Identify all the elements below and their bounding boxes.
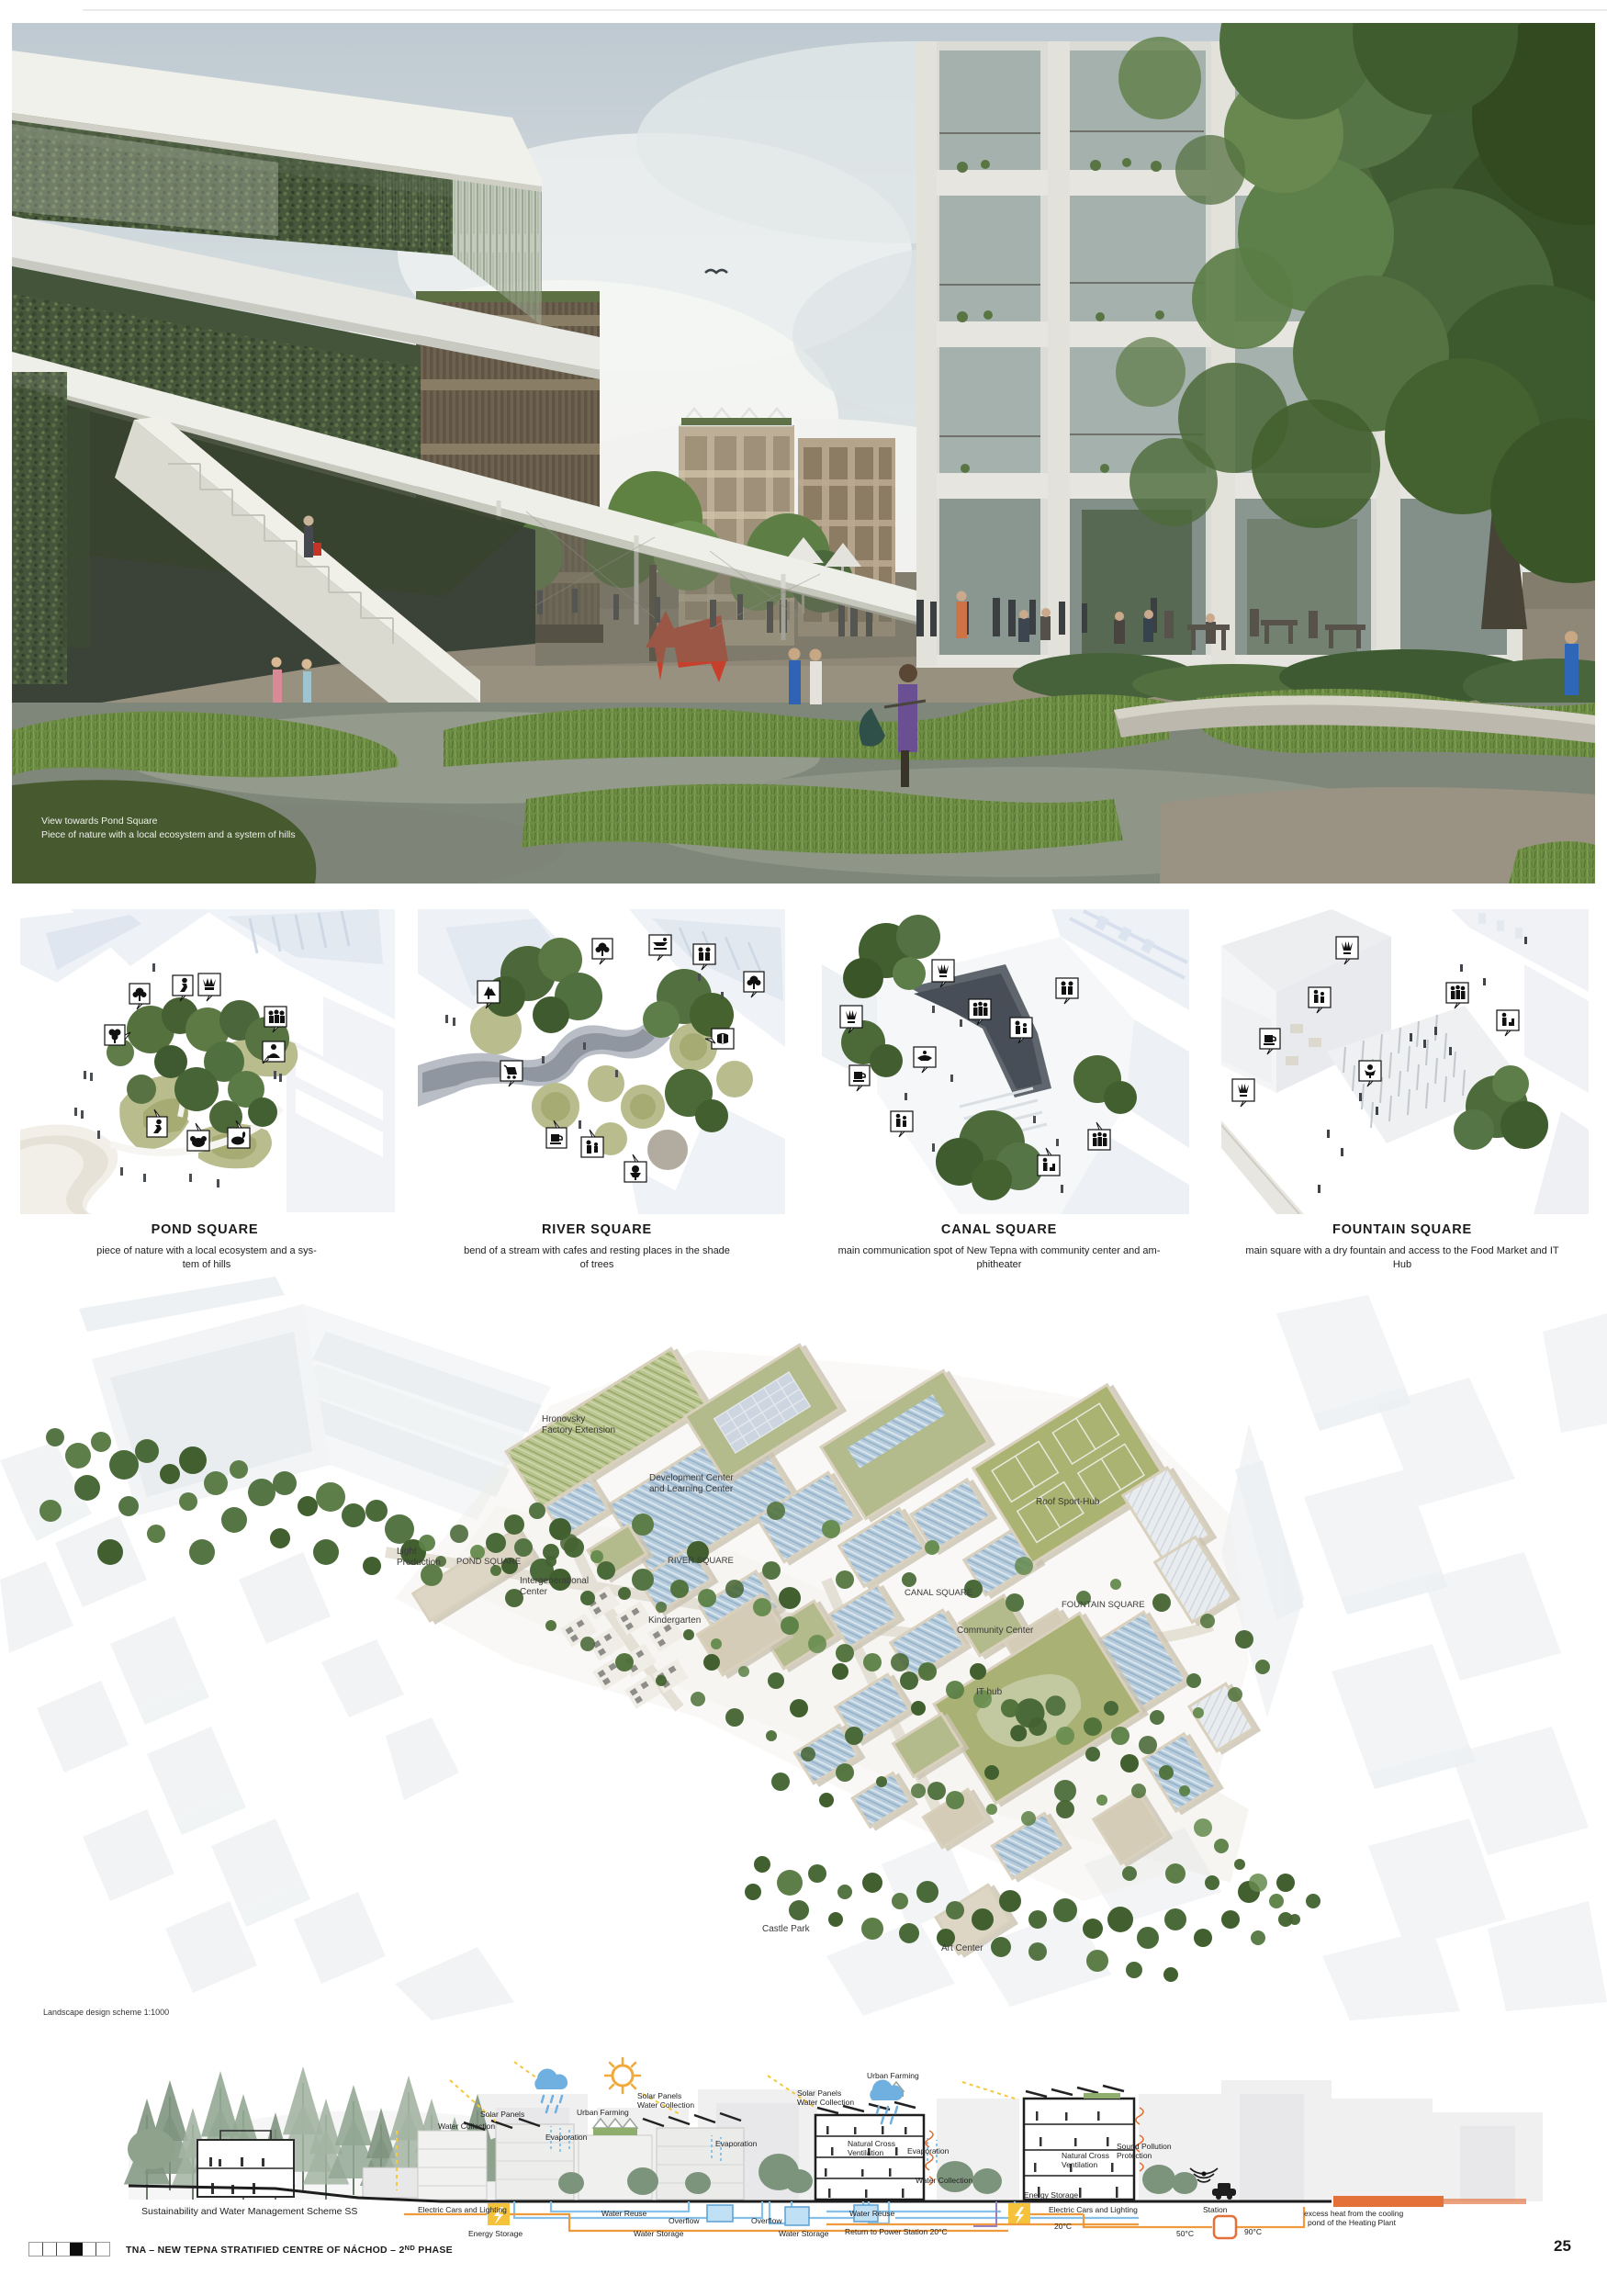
svg-text:Water Collection: Water Collection — [797, 2098, 854, 2107]
svg-text:Art Center: Art Center — [941, 1943, 983, 1953]
svg-text:Factory Extension: Factory Extension — [542, 1425, 615, 1435]
svg-text:Water Reuse: Water Reuse — [601, 2209, 647, 2218]
svg-text:Piece of nature with a local e: Piece of nature with a local ecosystem a… — [41, 829, 296, 840]
svg-text:Intergenerational: Intergenerational — [520, 1576, 589, 1586]
svg-text:Natural Cross: Natural Cross — [848, 2139, 895, 2148]
svg-text:Water Reuse: Water Reuse — [849, 2209, 895, 2218]
svg-text:Evaporation: Evaporation — [545, 2133, 588, 2142]
svg-text:50°C: 50°C — [1176, 2229, 1194, 2238]
svg-text:Community Center: Community Center — [957, 1626, 1034, 1636]
svg-text:Station: Station — [1203, 2205, 1228, 2214]
svg-text:Electric Cars and Lighting: Electric Cars and Lighting — [1049, 2205, 1138, 2214]
svg-text:Water Collection: Water Collection — [438, 2122, 495, 2131]
svg-text:View towards Pond Square: View towards Pond Square — [41, 816, 158, 827]
svg-text:Development Center: Development Center — [649, 1473, 734, 1483]
svg-text:Electric Cars and Lighting: Electric Cars and Lighting — [418, 2205, 507, 2214]
svg-text:Energy Storage: Energy Storage — [1024, 2190, 1078, 2200]
svg-text:IT hub: IT hub — [976, 1687, 1003, 1697]
svg-text:POND SQUARE: POND SQUARE — [456, 1557, 521, 1567]
svg-text:Overflow: Overflow — [751, 2216, 782, 2225]
svg-text:Water Collection: Water Collection — [916, 2176, 972, 2185]
svg-text:Protection: Protection — [1117, 2151, 1152, 2160]
svg-text:Roof Sport-Hub: Roof Sport-Hub — [1036, 1497, 1100, 1507]
svg-text:Water Storage: Water Storage — [779, 2229, 829, 2238]
svg-text:Overflow: Overflow — [669, 2216, 700, 2225]
svg-text:Natural Cross: Natural Cross — [1062, 2151, 1109, 2160]
svg-text:Production: Production — [397, 1558, 441, 1568]
svg-text:90°C: 90°C — [1244, 2227, 1262, 2236]
svg-text:Ventilation: Ventilation — [1062, 2160, 1097, 2169]
svg-text:Light: Light — [397, 1547, 417, 1557]
svg-text:and Learning Center: and Learning Center — [649, 1484, 734, 1494]
svg-text:RIVER SQUARE: RIVER SQUARE — [668, 1556, 734, 1566]
svg-text:CANAL SQUARE: CANAL SQUARE — [905, 1588, 972, 1598]
svg-text:Center: Center — [520, 1587, 548, 1597]
svg-text:Evaporation: Evaporation — [907, 2146, 950, 2155]
svg-text:Solar Panels: Solar Panels — [480, 2110, 524, 2119]
svg-text:20°C: 20°C — [1054, 2222, 1072, 2231]
svg-text:Sound Pollution: Sound Pollution — [1117, 2142, 1172, 2151]
svg-text:Hronovsky: Hronovsky — [542, 1414, 585, 1424]
svg-text:Ventilation: Ventilation — [848, 2148, 883, 2157]
svg-text:Solar Panels: Solar Panels — [797, 2088, 841, 2098]
svg-text:Kindergarten: Kindergarten — [648, 1615, 701, 1626]
svg-text:Return to Power Station 20°C: Return to Power Station 20°C — [845, 2227, 948, 2236]
svg-text:Urban Farming: Urban Farming — [867, 2071, 919, 2080]
svg-text:Water Storage: Water Storage — [634, 2229, 684, 2238]
svg-text:excess heat from the cooling: excess heat from the cooling — [1304, 2209, 1403, 2218]
svg-text:Solar Panels: Solar Panels — [637, 2091, 681, 2100]
svg-text:Castle Park: Castle Park — [762, 1924, 811, 1934]
svg-text:FOUNTAIN SQUARE: FOUNTAIN SQUARE — [1062, 1600, 1145, 1610]
svg-text:Urban Farming: Urban Farming — [577, 2108, 629, 2117]
svg-text:Water Collection: Water Collection — [637, 2100, 694, 2110]
svg-text:pond of the Heating Plant: pond of the Heating Plant — [1308, 2218, 1397, 2227]
svg-text:Evaporation: Evaporation — [715, 2139, 758, 2148]
svg-text:Energy Storage: Energy Storage — [468, 2229, 523, 2238]
